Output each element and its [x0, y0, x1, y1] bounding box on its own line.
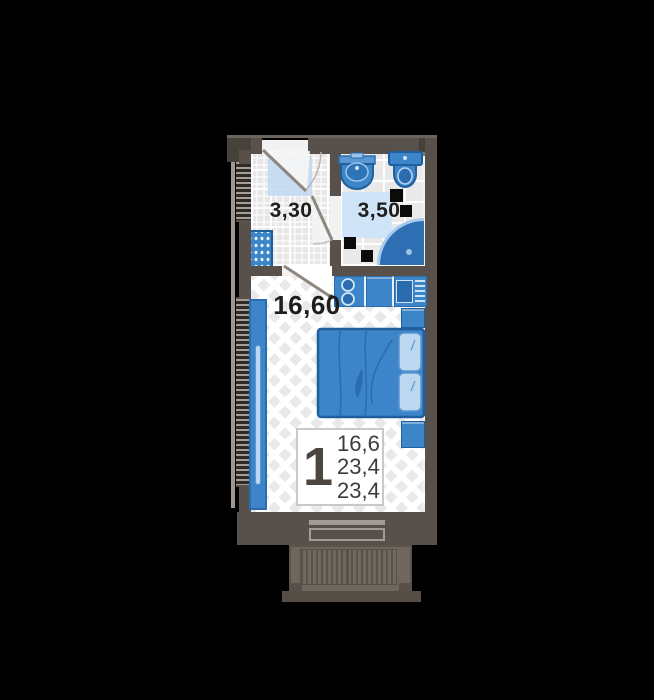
room-label-hall: 3,30 — [252, 200, 330, 221]
room-label-bathroom: 3,50 — [348, 200, 410, 221]
stove-burners — [342, 279, 354, 305]
area-value: 16,6 — [337, 432, 380, 455]
stage: 3,30 3,50 16,60 1 16,6 23,4 23,4 — [0, 0, 654, 700]
area-value: 23,4 — [337, 455, 380, 478]
rooms-count: 1 — [303, 443, 333, 492]
fixtures-overlay — [0, 0, 654, 700]
floor-plan[interactable]: 3,30 3,50 16,60 1 16,6 23,4 23,4 — [0, 0, 654, 700]
entrance-door — [263, 150, 321, 191]
area-value: 23,4 — [337, 479, 380, 502]
info-box: 1 16,6 23,4 23,4 — [296, 428, 384, 506]
bathroom-sink — [339, 153, 375, 189]
area-values: 16,6 23,4 23,4 — [337, 432, 380, 501]
bed — [318, 329, 424, 417]
toilet — [389, 152, 422, 187]
pillow — [399, 333, 421, 371]
shower-drain — [406, 249, 412, 255]
room-label-living: 16,60 — [272, 292, 342, 318]
pillow — [399, 373, 421, 411]
